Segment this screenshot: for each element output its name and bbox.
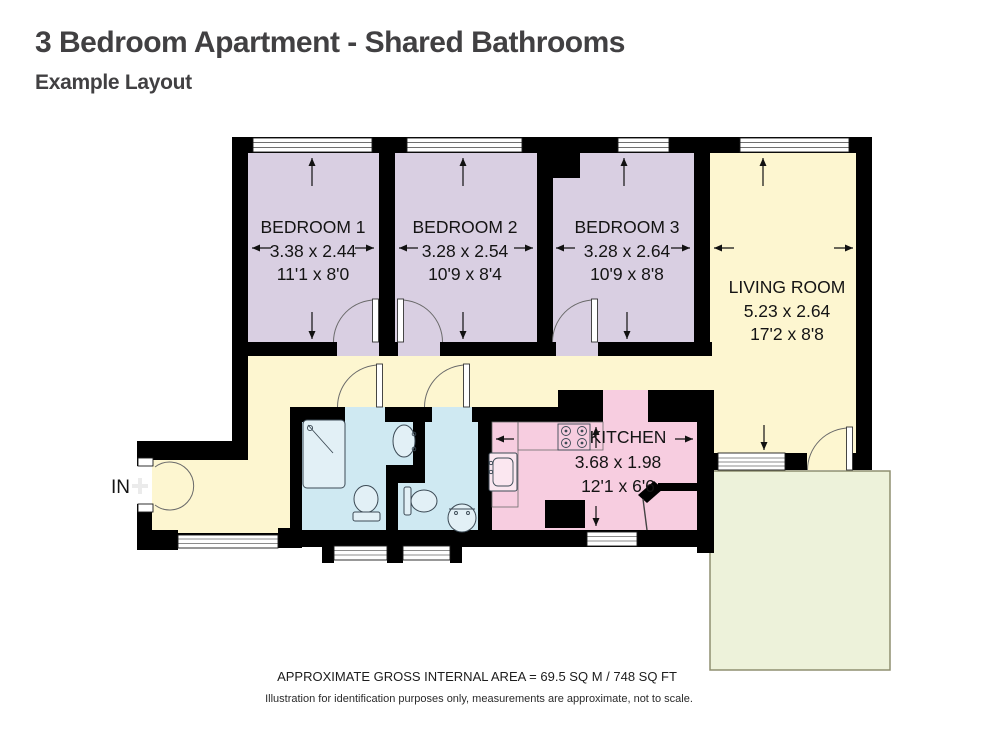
- bedroom-1-name: BEDROOM 1: [260, 217, 365, 237]
- kitchen-doorway-floor: [603, 390, 648, 422]
- bedroom-2-name: BEDROOM 2: [412, 217, 517, 237]
- living-room-metric: 5.23 x 2.64: [744, 301, 831, 321]
- living-room-imperial: 17'2 x 8'8: [750, 324, 824, 344]
- entrance-label: IN: [111, 477, 130, 498]
- bedroom-1-metric: 3.38 x 2.44: [270, 241, 357, 261]
- bedroom-3-imperial: 10'9 x 8'8: [590, 264, 664, 284]
- toilet-icon: [353, 486, 380, 522]
- bedroom-3-notch: [553, 153, 580, 178]
- entry-threshold-bottom: [138, 504, 153, 512]
- page-title: 3 Bedroom Apartment - Shared Bathrooms: [35, 26, 625, 59]
- area-note: APPROXIMATE GROSS INTERNAL AREA = 69.5 S…: [277, 669, 677, 684]
- bedroom-3-metric: 3.28 x 2.64: [584, 241, 671, 261]
- disclaimer: Illustration for identification purposes…: [265, 693, 693, 705]
- window-living-bottom: [718, 453, 785, 470]
- bedroom-1-imperial: 11'1 x 8'0: [277, 264, 350, 284]
- kitchen-name: KITCHEN: [590, 427, 667, 447]
- kitchen-metric: 3.68 x 1.98: [575, 452, 662, 472]
- window-hall: [178, 535, 278, 548]
- entry-threshold-top: [138, 458, 153, 466]
- window-bedroom-2: [407, 138, 522, 152]
- floorplan-page: 3 Bedroom Apartment - Shared Bathrooms E…: [0, 0, 1000, 750]
- floorplan-canvas: 3 Bedroom Apartment - Shared Bathrooms E…: [0, 0, 1000, 750]
- bedroom-2-metric: 3.28 x 2.54: [422, 241, 509, 261]
- living-room-name: LIVING ROOM: [729, 277, 846, 297]
- shower-icon: [303, 420, 345, 488]
- bedroom-2-imperial: 10'9 x 8'4: [428, 264, 502, 284]
- window-bedroom-3: [618, 138, 669, 152]
- window-bathroom-1: [334, 546, 387, 560]
- kitchen-sink-icon: [489, 453, 517, 491]
- bedroom-3-name: BEDROOM 3: [574, 217, 679, 237]
- sink-icon: [393, 425, 416, 457]
- window-bathroom-2: [403, 546, 450, 560]
- page-subtitle: Example Layout: [35, 71, 192, 94]
- window-kitchen: [587, 532, 637, 546]
- entry-marker: [132, 478, 148, 494]
- window-living-top: [740, 138, 849, 152]
- basin-icon: [448, 504, 476, 532]
- window-bedroom-1: [253, 138, 372, 152]
- kitchen-imperial: 12'1 x 6'6: [581, 476, 655, 496]
- balcony-floor: [710, 471, 890, 670]
